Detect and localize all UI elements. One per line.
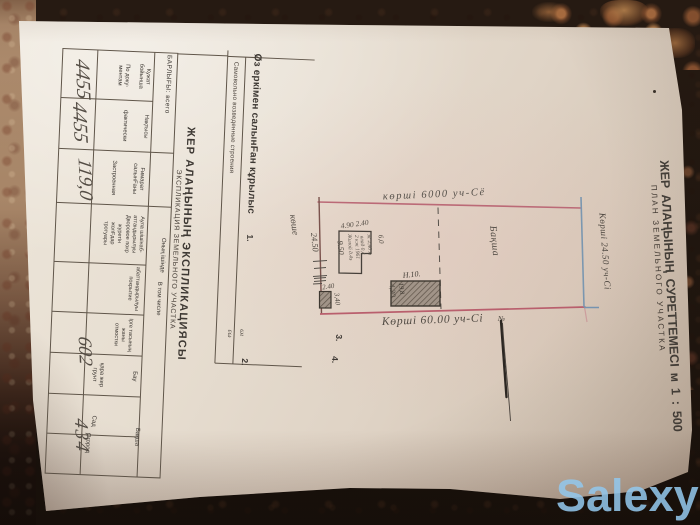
- svg-text:9.50: 9.50: [336, 240, 346, 255]
- svg-text:6,0: 6,0: [377, 234, 386, 244]
- svg-text:көрші 6000 уч-Сё: көрші 6000 уч-Сё: [383, 187, 486, 202]
- svg-text:19,8: 19,8: [397, 282, 405, 295]
- svg-text:Көрші 60.00 уч-Сі: Көрші 60.00 уч-Сі: [381, 312, 484, 328]
- svg-text:ж 2,40 м: ж 2,40 м: [366, 234, 374, 256]
- svg-text:2.40: 2.40: [322, 282, 336, 292]
- svg-text:Көрші 24.50 уч-Сі: Көрші 24.50 уч-Сі: [597, 211, 612, 290]
- svg-text:Н.10.: Н.10.: [401, 269, 421, 280]
- svg-text:3,40: 3,40: [332, 291, 341, 306]
- svg-text:влад 0,4: влад 0,4: [359, 236, 367, 255]
- svg-text:4,30: 4,30: [388, 283, 398, 297]
- svg-text:24.50: 24.50: [309, 232, 321, 253]
- svg-text:4.90 2.40: 4.90 2.40: [340, 218, 369, 231]
- svg-text:көше: көше: [287, 214, 300, 236]
- svg-text:Бақша: Бақша: [487, 224, 501, 257]
